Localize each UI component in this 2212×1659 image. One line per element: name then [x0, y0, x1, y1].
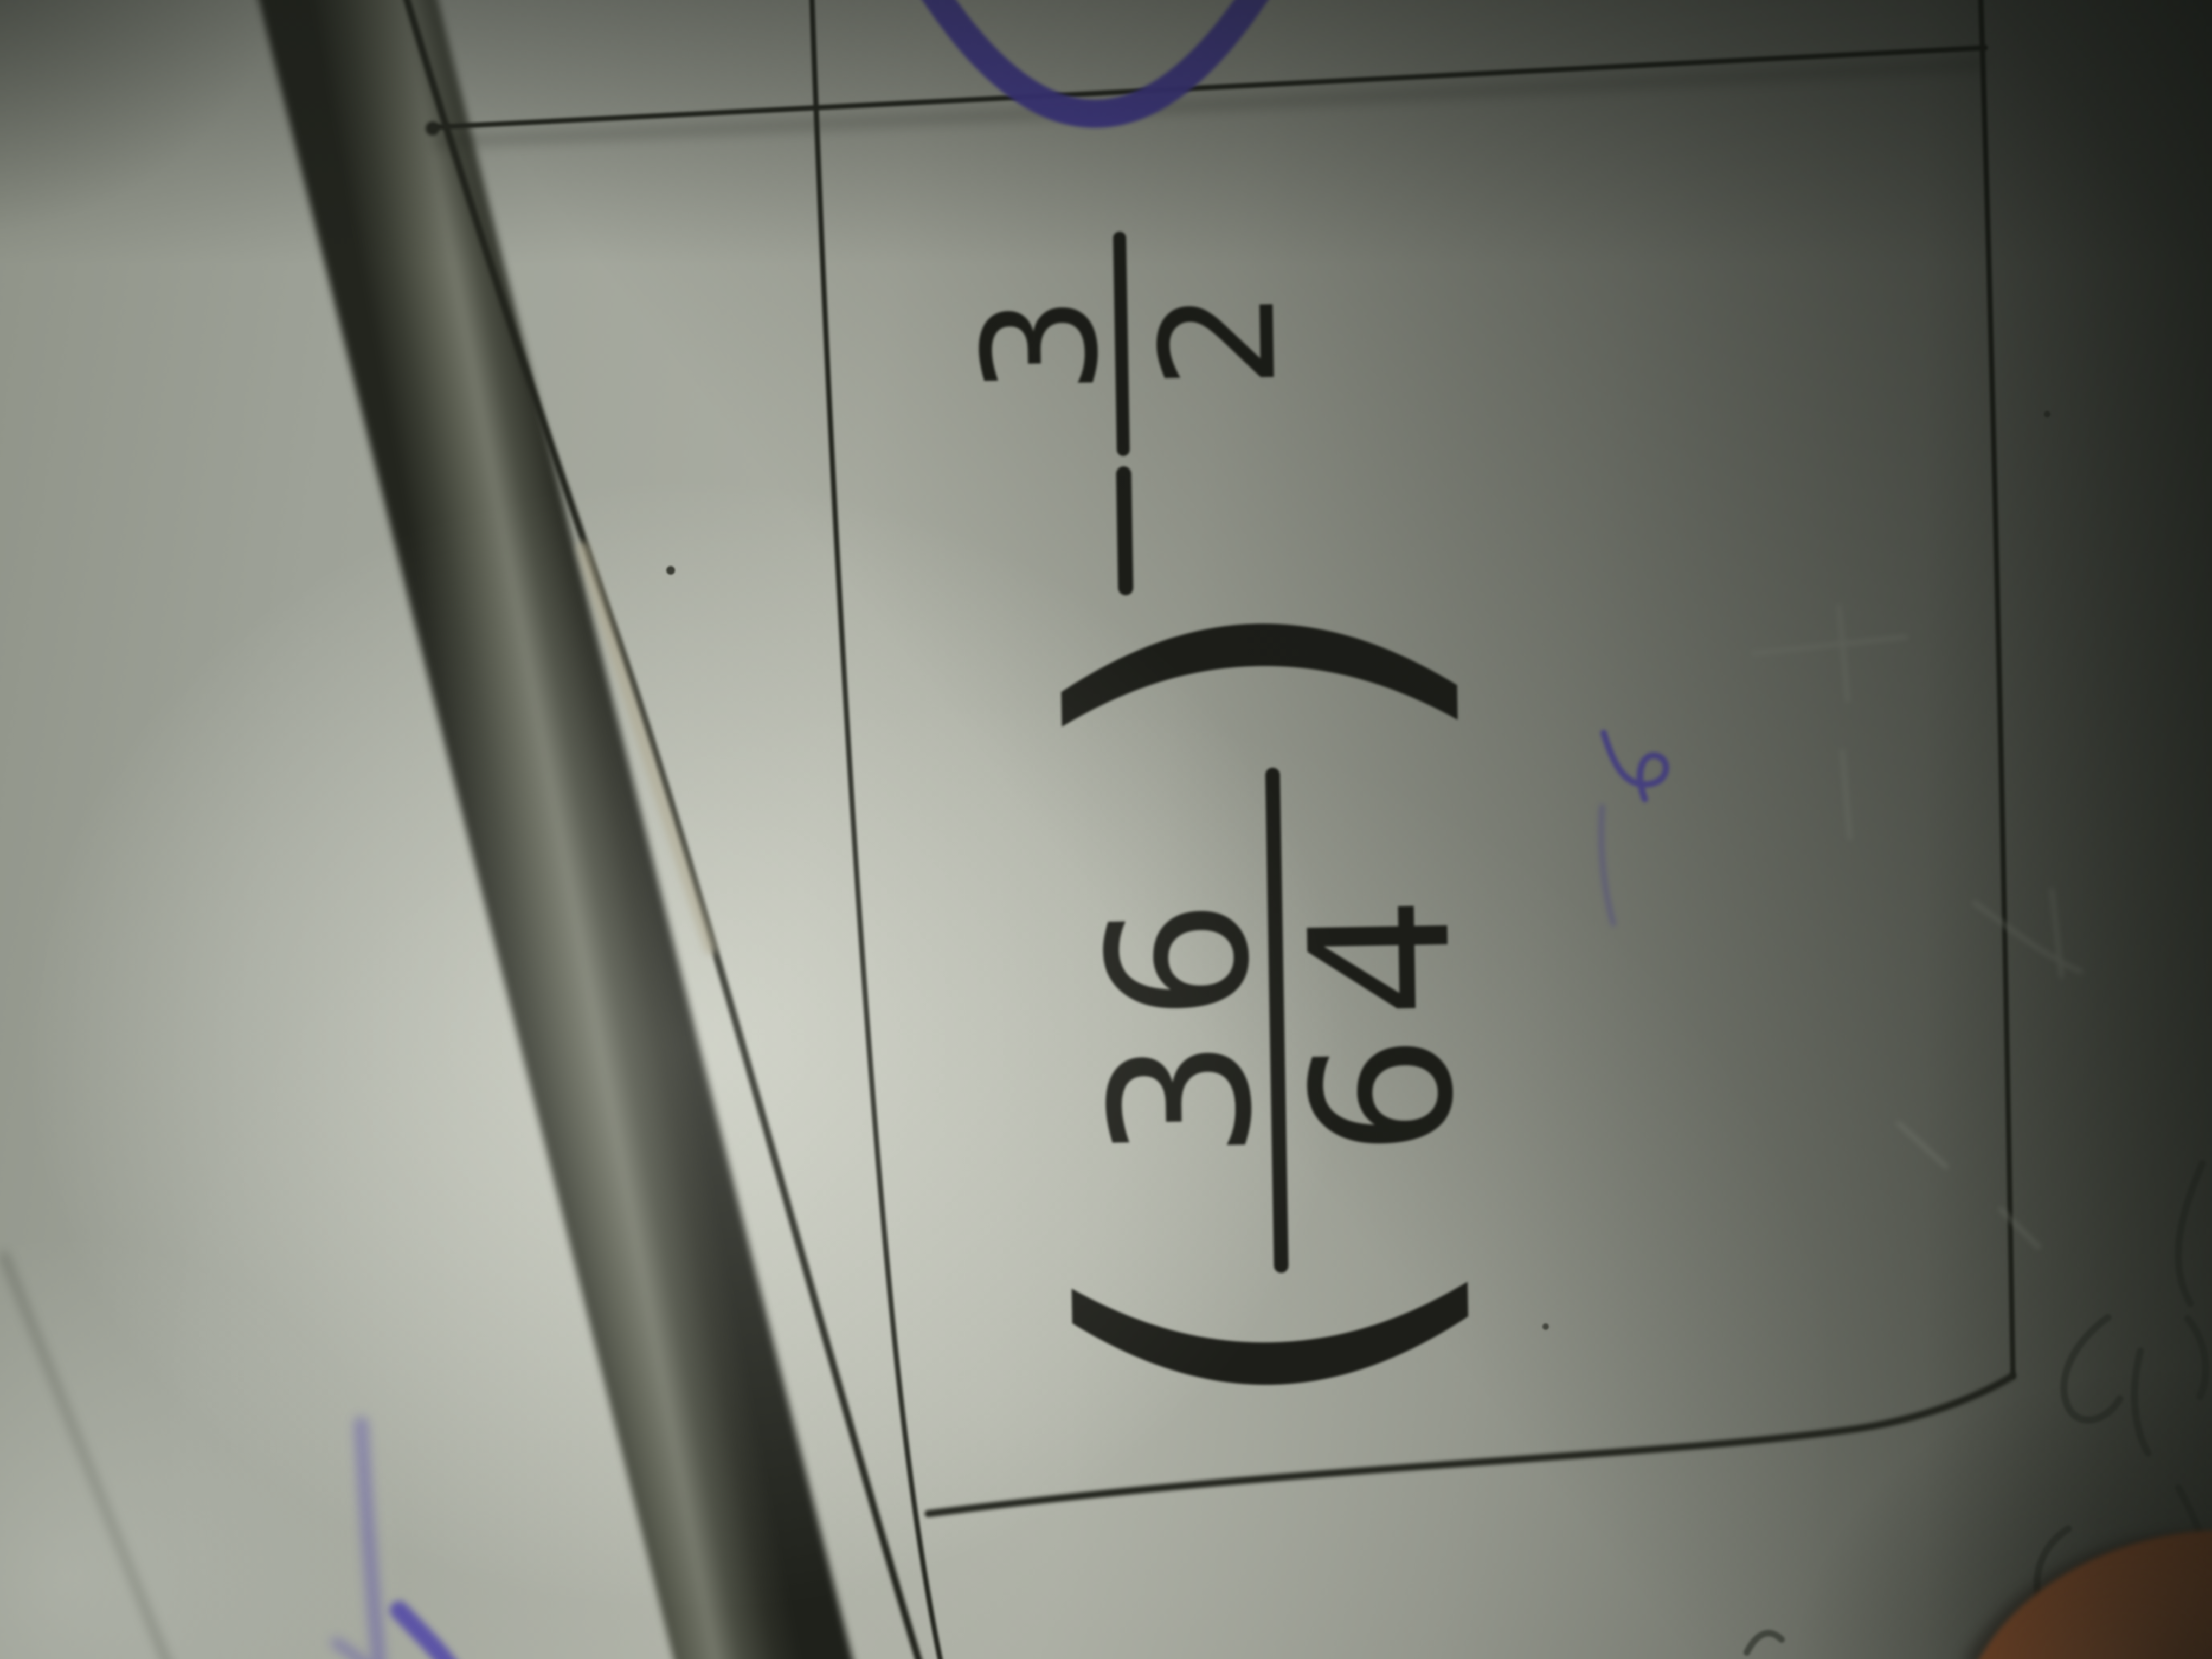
ghost-stroke [2001, 1209, 2039, 1247]
ink-speck [666, 566, 675, 575]
ghost-stroke [1975, 903, 2081, 972]
pencil-hook-bottom [1747, 1633, 1782, 1652]
pencil-stroke [2188, 1319, 2205, 1397]
blue-smudge-streak [361, 1424, 380, 1659]
ghost-stroke [2052, 890, 2061, 976]
ghost-stroke [1899, 1123, 1946, 1167]
exponent-fraction-bar [1120, 238, 1123, 449]
out-of-focus-line-bottom-left [3, 1252, 171, 1659]
pencil-stroke [2178, 1163, 2202, 1303]
blue-scribble-bottom-left [399, 1610, 452, 1659]
exponent-denominator: 2 [1127, 288, 1311, 391]
blue-circle-arc [922, 0, 1269, 114]
fingertip [1924, 1483, 2212, 1659]
pencil-stroke [2037, 1529, 2091, 1624]
line-junction-blob [426, 121, 440, 136]
page-edge-line [404, 0, 922, 1659]
ghost-stroke [1754, 637, 1906, 653]
blue-tick-mark [1604, 733, 1666, 799]
ghost-stroke [1842, 751, 1850, 838]
open-paren: ( [996, 1245, 1516, 1428]
ghost-stroke [1839, 606, 1848, 700]
math-expression: ( 36 64 ) 3 2 [957, 228, 1553, 1485]
table-border-top [432, 48, 1985, 127]
table-border-left [812, 0, 942, 1659]
pencil-stroke [2178, 1488, 2212, 1578]
blue-tick-tail [1602, 807, 1613, 924]
base-numerator: 36 [1066, 881, 1295, 1162]
finger-shadow [1971, 1543, 2212, 1659]
table-line-shadow [439, 64, 1979, 142]
pencil-stroke [2134, 1351, 2148, 1453]
pencil-stroke [2064, 1317, 2120, 1420]
close-paren: ) [985, 581, 1504, 764]
exponent-numerator: 3 [949, 294, 1134, 397]
ink-speck [2044, 411, 2050, 417]
base-denominator: 64 [1268, 878, 1497, 1159]
page-edge-highlight [583, 548, 710, 949]
photo-of-workbook-page: ( 36 64 ) 3 2 [0, 0, 2212, 1659]
blue-scribble-bottom-left [336, 1643, 369, 1659]
page-stack-edge-band [255, 0, 857, 1659]
table-border-right [1980, 0, 2013, 1376]
exponent-minus [1124, 474, 1126, 588]
